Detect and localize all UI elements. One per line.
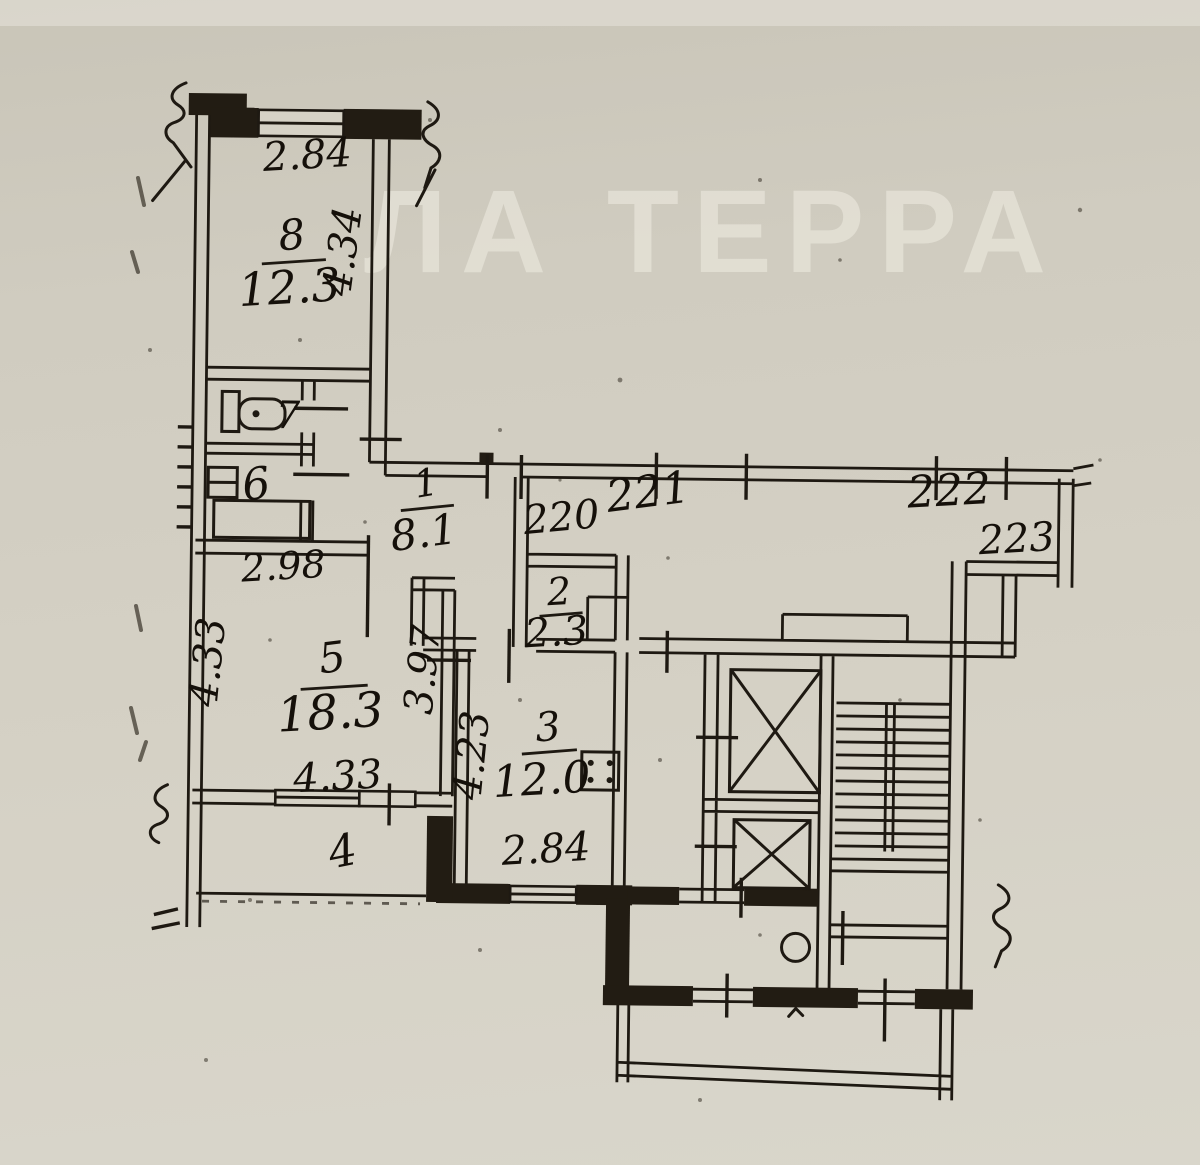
entrance-porch-walls bbox=[617, 1000, 953, 1100]
room-4-number: 4 bbox=[323, 824, 361, 880]
room-2-area: 2.3 bbox=[522, 608, 589, 658]
room-8-number: 8 bbox=[276, 209, 307, 260]
break-bottom-right bbox=[993, 885, 1011, 967]
break-bottom-left bbox=[150, 785, 168, 843]
room-5-area: 18.3 bbox=[275, 682, 385, 744]
room-3-area: 12.0 bbox=[491, 752, 592, 809]
balcony-hatch bbox=[202, 901, 420, 904]
elevator-block-walls bbox=[635, 612, 1016, 993]
room-6-number: 6 bbox=[239, 457, 273, 511]
floor-plan-drawing: ЛА ТЕРРА bbox=[0, 0, 1200, 1165]
room-3-number: 3 bbox=[533, 703, 563, 751]
dim-room5-bottom: 4.33 bbox=[291, 751, 384, 802]
sink-icon bbox=[208, 467, 237, 497]
door-number-220: 220 bbox=[520, 491, 601, 544]
door-number-221: 221 bbox=[602, 462, 693, 523]
garbage-chute-icon bbox=[781, 933, 809, 961]
floor-plan-scan: ЛА ТЕРРА bbox=[0, 0, 1200, 1165]
room-5-number: 5 bbox=[316, 631, 349, 683]
balcony-edge bbox=[196, 893, 426, 896]
room-2-number: 2 bbox=[545, 569, 573, 614]
break-top-left bbox=[153, 83, 192, 201]
dim-room3-bottom: 2.84 bbox=[499, 824, 592, 875]
room-7-number: 7 bbox=[276, 393, 302, 437]
paper-edge bbox=[0, 0, 1200, 26]
dim-room5-top: 2.98 bbox=[239, 542, 327, 591]
room-1-area: 8.1 bbox=[387, 504, 459, 561]
watermark-text: ЛА ТЕРРА bbox=[364, 166, 1060, 298]
room-1-number: 1 bbox=[410, 459, 441, 506]
stair-walls bbox=[829, 560, 1016, 990]
stairs-icon bbox=[835, 703, 951, 852]
dim-room8-top: 2.84 bbox=[260, 130, 353, 181]
dim-room5-left: 4.33 bbox=[181, 615, 236, 709]
elevator-shaft-icon bbox=[729, 670, 820, 793]
elevator-shafts bbox=[728, 670, 821, 889]
elevator-shaft-icon bbox=[733, 820, 810, 889]
dim-room5-right: 3.97 bbox=[396, 623, 451, 717]
door-number-223: 223 bbox=[976, 514, 1056, 564]
room-8-area: 12.3 bbox=[237, 257, 342, 317]
door-number-222: 222 bbox=[905, 463, 993, 519]
dim-room3-left: 4.23 bbox=[444, 709, 499, 803]
